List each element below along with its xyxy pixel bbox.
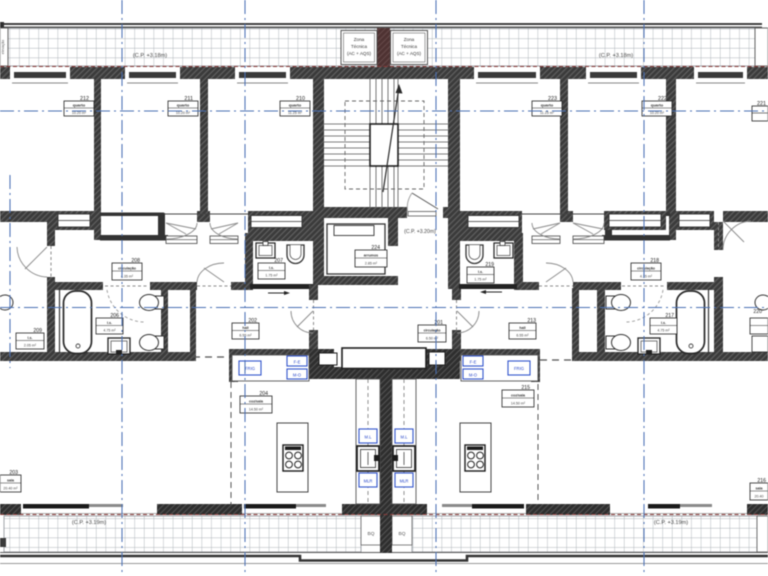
svg-text:(AC + AQS): (AC + AQS) <box>397 51 422 56</box>
svg-text:elevação: elevação <box>1 40 5 54</box>
svg-text:20.40 m²: 20.40 m² <box>3 487 18 491</box>
svg-text:circulação: circulação <box>424 329 441 333</box>
svg-text:4.35 m²: 4.35 m² <box>640 275 653 279</box>
svg-text:I.s.: I.s. <box>661 321 666 325</box>
svg-text:1.75 m²: 1.75 m² <box>265 274 278 278</box>
svg-text:quarto: quarto <box>177 103 190 108</box>
svg-text:6.55 m²: 6.55 m² <box>516 334 529 338</box>
svg-text:M.L: M.L <box>401 435 409 440</box>
svg-text:MLR: MLR <box>364 479 373 484</box>
svg-text:FRIG: FRIG <box>514 366 524 371</box>
svg-text:14.50 m²: 14.50 m² <box>249 408 264 412</box>
svg-text:4.75 m²: 4.75 m² <box>657 329 670 333</box>
svg-text:Zona: Zona <box>404 37 415 42</box>
svg-text:(AC + AQS): (AC + AQS) <box>347 51 372 56</box>
svg-text:M-O: M-O <box>293 373 302 378</box>
svg-text:BQ: BQ <box>368 531 375 537</box>
svg-text:2.85 m²: 2.85 m² <box>365 262 378 266</box>
svg-text:quarto: quarto <box>541 103 554 108</box>
svg-text:2.05 m²: 2.05 m² <box>24 344 37 348</box>
svg-text:4.75 m²: 4.75 m² <box>103 329 116 333</box>
svg-text:M-O: M-O <box>469 373 478 378</box>
svg-text:circulação: circulação <box>637 267 656 271</box>
svg-text:10.20 m²: 10.20 m² <box>72 111 87 115</box>
svg-text:(C.P. +3.18m): (C.P. +3.18m) <box>599 53 633 59</box>
svg-text:F-E: F-E <box>294 360 301 365</box>
svg-text:1.75 m²: 1.75 m² <box>474 278 487 282</box>
svg-text:MLR: MLR <box>400 479 409 484</box>
svg-text:(C.P. +3.20m): (C.P. +3.20m) <box>404 229 436 235</box>
svg-text:hall: hall <box>242 326 248 330</box>
svg-text:coz/sala: coz/sala <box>249 400 264 404</box>
svg-text:I.s.: I.s. <box>478 270 483 274</box>
svg-text:4.35 m²: 4.35 m² <box>121 275 134 279</box>
svg-text:quarto: quarto <box>289 103 302 108</box>
svg-text:sala: sala <box>7 479 15 483</box>
svg-text:quarto: quarto <box>651 103 664 108</box>
svg-text:quarto: quarto <box>73 103 86 108</box>
svg-text:FRIG: FRIG <box>245 366 255 371</box>
svg-text:I.s.: I.s. <box>107 321 112 325</box>
svg-text:11.25 m²: 11.25 m² <box>288 111 303 115</box>
svg-text:6.50 m²: 6.50 m² <box>426 337 439 341</box>
svg-text:20.40: 20.40 <box>755 495 764 499</box>
svg-text:(C.P. +3.19m): (C.P. +3.19m) <box>654 520 688 526</box>
svg-text:(C.P. +3.19m): (C.P. +3.19m) <box>72 520 106 526</box>
svg-text:(C.P. +3.18m): (C.P. +3.18m) <box>133 53 167 59</box>
svg-text:Técnica: Técnica <box>351 44 368 49</box>
svg-text:BQ: BQ <box>399 531 406 537</box>
svg-text:arrumos: arrumos <box>364 254 378 258</box>
svg-text:220: 220 <box>753 309 762 315</box>
svg-text:M.L: M.L <box>365 435 373 440</box>
svg-text:Zona: Zona <box>354 37 365 42</box>
svg-text:10.20 m²: 10.20 m² <box>650 111 665 115</box>
svg-text:circulação: circulação <box>118 267 137 271</box>
svg-text:10.20 m²: 10.20 m² <box>176 111 191 115</box>
svg-text:F-E: F-E <box>470 360 477 365</box>
svg-text:I.s.: I.s. <box>28 336 33 340</box>
svg-text:I.s.: I.s. <box>269 266 274 270</box>
svg-text:Técnica: Técnica <box>401 44 418 49</box>
svg-text:11.25 m²: 11.25 m² <box>540 111 555 115</box>
svg-text:coz/sala: coz/sala <box>511 394 526 398</box>
svg-text:hall: hall <box>519 326 525 330</box>
svg-text:sala: sala <box>756 487 764 491</box>
svg-text:14.50 m²: 14.50 m² <box>511 402 526 406</box>
svg-text:6.55 m²: 6.55 m² <box>239 334 252 338</box>
